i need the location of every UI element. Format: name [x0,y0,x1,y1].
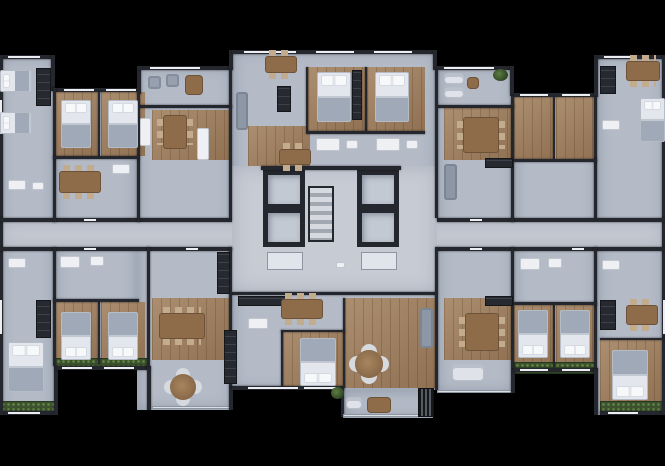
window-opening [572,248,584,250]
window-opening [64,89,94,91]
wall [553,97,555,159]
window-opening [562,369,590,371]
kitchen-counter [600,66,616,94]
dining-table [160,314,204,338]
bed [61,312,91,360]
window-opening [316,51,354,53]
bed [61,100,91,148]
window-opening [84,219,96,221]
wall [510,66,514,96]
elevator-shaft [263,208,305,247]
window-opening [444,67,494,69]
wall [232,292,437,295]
wall [600,338,665,340]
wall [53,299,139,302]
wall [553,305,555,367]
wall [365,67,367,131]
wall [261,166,401,170]
bathroom-fixture [520,258,540,270]
armchair [166,74,179,87]
window-opening [520,94,548,96]
bathroom-fixture [376,138,400,151]
window-opening [562,94,590,96]
wall [147,366,151,410]
dining-table [266,57,296,72]
lounge-chair [444,73,464,84]
wall [229,70,232,218]
sofa [420,308,433,348]
wall [137,66,141,94]
dining-table [164,116,186,148]
wall [137,105,232,108]
round-table [170,374,196,400]
bed [108,100,138,148]
window-opening [248,387,298,389]
wall [514,159,597,162]
dining-table [464,118,498,152]
wood-floor-area [556,97,597,159]
dining-table [627,306,657,324]
bathroom-fixture [112,164,130,174]
wall [306,131,425,134]
wall [594,247,597,368]
window-opening [0,300,2,334]
bathroom-fixture [346,140,358,149]
wall [98,302,100,364]
floor-plan [0,0,665,466]
dining-table [466,314,498,350]
bed [560,310,590,358]
wall [53,247,56,366]
elevator-shaft [263,170,305,209]
wall [51,55,55,91]
wall [437,105,514,108]
dining-table [282,300,322,318]
window-opening [106,89,136,91]
kitchen-counter [224,330,237,384]
wall [53,88,56,222]
window-opening [8,56,40,58]
wall [594,97,597,218]
wall [594,55,598,97]
bathroom-fixture [336,262,345,268]
window-opening [470,219,482,221]
bathroom-fixture [90,256,104,266]
staircase [308,186,334,242]
dining-table [280,150,310,164]
elevator-shaft [357,170,399,209]
lounge-chair [452,364,484,381]
bed [8,342,44,392]
louver-screen [418,388,434,417]
bed [0,70,32,92]
bathroom-fixture [548,258,562,268]
kitchen-counter [36,300,51,338]
kitchen-counter [352,70,362,120]
bathroom-fixture [602,120,620,130]
wood-floor-area [514,97,554,159]
bathroom-fixture [316,138,340,151]
lounge-chair [444,87,464,98]
window-opening [186,248,198,250]
wall [281,330,283,388]
wall [514,302,597,305]
wall [435,70,438,218]
bed [612,350,648,400]
window-opening [8,412,40,414]
wall [53,156,139,159]
bathroom-fixture [32,182,44,190]
dining-table [627,62,659,80]
sofa [236,92,248,130]
wall [54,366,58,415]
window-opening [104,367,134,369]
side-table [186,76,202,94]
bed [0,112,32,134]
wall [594,368,598,415]
window-opening [150,67,200,69]
window-opening [520,369,548,371]
bathroom-fixture [140,118,151,146]
elevator-shaft [357,208,399,247]
bathroom-fixture [8,180,26,190]
kitchen-counter [217,252,230,294]
window-opening [470,248,482,250]
kitchen-counter [485,296,513,306]
bathroom-fixture [248,318,268,329]
wall [0,218,232,222]
bathroom-fixture [406,140,418,149]
wall [511,247,514,368]
bathroom-fixture [8,258,26,268]
bed [300,338,336,386]
bathroom-fixture [602,260,620,270]
bed [375,72,409,122]
bed [317,72,351,122]
bathroom-fixture [60,256,80,268]
plant [493,69,508,81]
window-opening [374,51,412,53]
window-opening [84,248,96,250]
wall [98,92,100,156]
round-table [355,350,383,378]
plant [331,387,344,399]
side-table [368,398,390,412]
glass-balustrade [437,390,513,393]
bed [108,312,138,360]
window-opening [608,412,638,414]
armchair [148,76,161,89]
kitchen-counter [277,86,291,112]
bathroom-fixture [197,128,209,160]
wall [343,298,345,388]
window-opening [604,56,632,58]
sofa [444,164,457,200]
side-table [468,78,478,88]
window-opening [62,367,92,369]
lounge-chair [346,397,362,409]
glass-balustrade [152,406,232,409]
kitchen-counter [485,158,513,168]
elevator-lobby [267,252,303,270]
bed [518,310,548,358]
wall [281,330,345,332]
kitchen-counter [36,68,51,106]
wall [435,247,438,390]
elevator-lobby [361,252,397,270]
kitchen-counter [600,300,616,330]
wall [147,247,150,366]
wall [306,67,308,131]
dining-table [60,172,100,192]
bed [640,98,665,142]
